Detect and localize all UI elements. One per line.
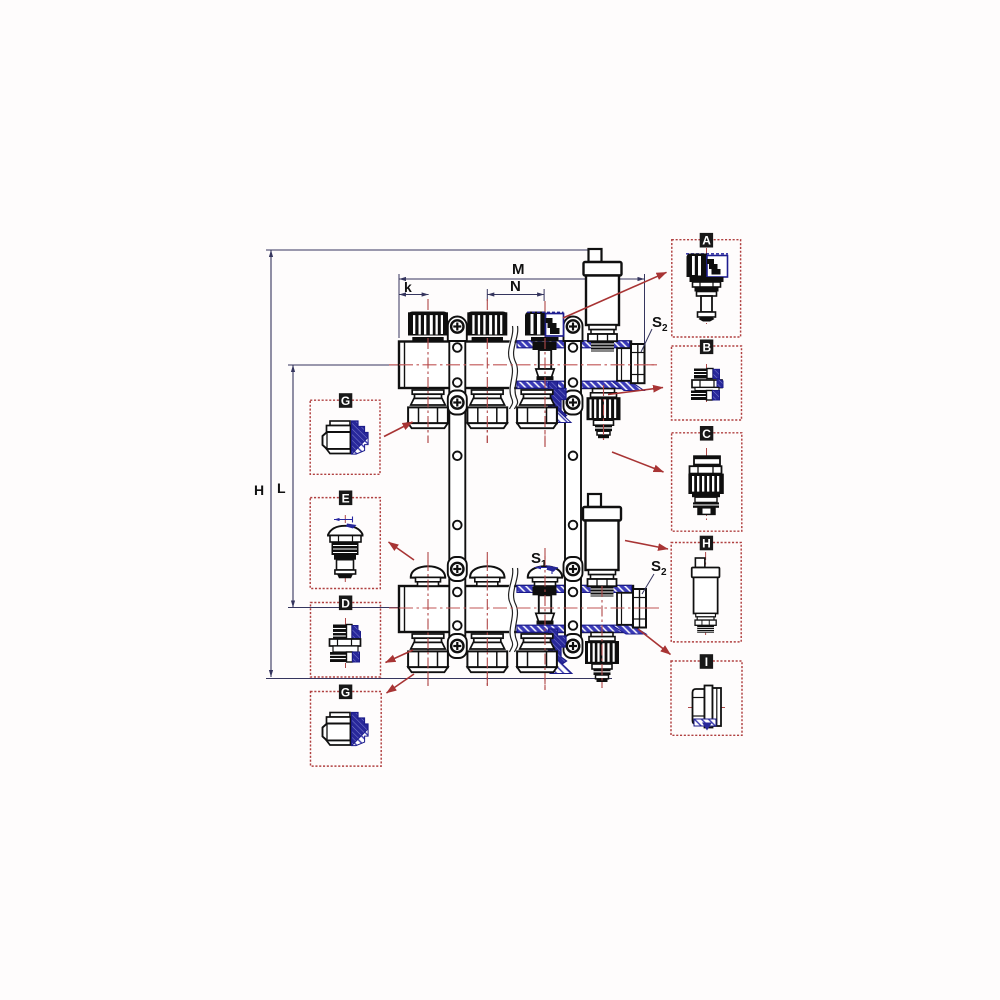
svg-text:G: G <box>341 394 350 408</box>
svg-text:2: 2 <box>662 323 668 334</box>
svg-text:2: 2 <box>661 567 667 578</box>
svg-text:H: H <box>254 482 264 498</box>
svg-text:C: C <box>702 427 711 441</box>
svg-text:N: N <box>510 278 521 295</box>
svg-text:S: S <box>651 558 661 575</box>
svg-text:I: I <box>705 655 708 669</box>
svg-text:L: L <box>277 480 286 496</box>
svg-text:M: M <box>512 261 525 278</box>
svg-text:S: S <box>652 314 662 331</box>
svg-text:S: S <box>531 550 541 567</box>
svg-text:D: D <box>341 596 350 610</box>
svg-text:1: 1 <box>541 559 547 570</box>
svg-text:G: G <box>341 685 350 699</box>
svg-text:B: B <box>703 340 712 354</box>
svg-text:H: H <box>702 537 711 551</box>
svg-text:E: E <box>342 491 350 505</box>
svg-text:A: A <box>702 234 711 248</box>
svg-text:k: k <box>404 279 412 295</box>
